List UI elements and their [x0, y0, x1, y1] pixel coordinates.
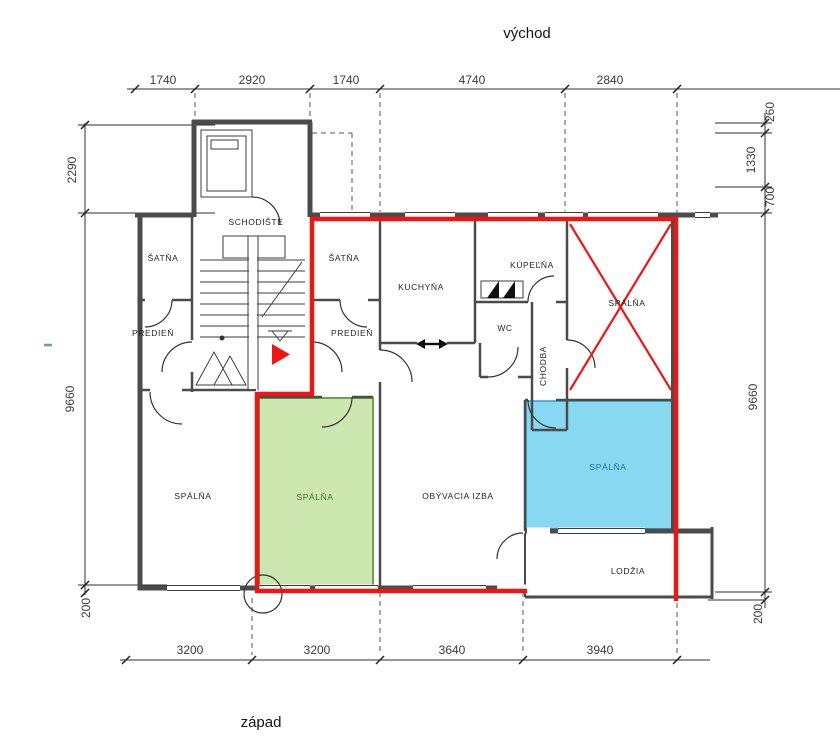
dim-right-9660: 9660: [746, 383, 760, 410]
dim-right-260: 260: [763, 102, 777, 122]
pass-through-arrow-icon: [416, 339, 448, 349]
room-label-chodba: CHODBA: [538, 346, 548, 386]
room-label-obyvacia-izba: OBÝVACIA IZBA: [422, 491, 493, 501]
room-label-spalna-green: SPÁLŇA: [296, 492, 333, 502]
staircase: [196, 130, 305, 390]
dimension-labels: 1740 2920 1740 4740 2840 3200 3200 3640 …: [63, 73, 777, 657]
dim-left-2290: 2290: [65, 156, 79, 183]
dim-bottom-4: 3940: [587, 643, 614, 657]
room-label-predien-left: PREDIEŇ: [132, 328, 174, 338]
dim-right-1330: 1330: [744, 146, 758, 173]
room-label-schodiste: SCHODIŠTE: [229, 217, 284, 227]
dim-bottom-2: 3200: [304, 643, 331, 657]
dim-right-700: 700: [763, 187, 777, 207]
dim-top-3: 1740: [333, 73, 360, 87]
room-label-wc: WC: [497, 323, 512, 333]
dim-top-5: 2840: [597, 73, 624, 87]
floor-plan-drawing: SCHODIŠTE ŠATŇA ŠATŇA PREDIEŇ PREDIEŇ KU…: [0, 0, 840, 747]
dim-left-200: 200: [79, 598, 93, 618]
dim-right-200: 200: [751, 604, 765, 624]
room-label-satna-right: ŠATŇA: [329, 253, 360, 263]
red-triangle-marker: [272, 344, 290, 365]
room-label-spalna-crossed: SPÁLŇA: [608, 298, 645, 308]
room-label-lodzia: LODŽIA: [611, 566, 645, 576]
floor-plan-page: SCHODIŠTE ŠATŇA ŠATŇA PREDIEŇ PREDIEŇ KU…: [0, 0, 840, 747]
room-label-satna-left: ŠATŇA: [148, 253, 179, 263]
room-label-kupelna: KÚPEĽŇA: [510, 260, 554, 270]
dim-left-9660: 9660: [63, 385, 77, 412]
room-label-spalna-blue: SPÁLŇA: [589, 462, 626, 472]
room-label-kuchyna: KUCHYŇA: [398, 282, 444, 292]
room-label-predien-right: PREDIEŇ: [331, 328, 373, 338]
compass-west-label: západ: [241, 714, 282, 731]
dim-top-2: 2920: [239, 73, 266, 87]
dim-bottom-1: 3200: [177, 643, 204, 657]
room-label-spalna-left: SPÁLŇA: [174, 491, 211, 501]
compass-east-label: východ: [503, 25, 551, 42]
dim-top-1: 1740: [150, 73, 177, 87]
dim-top-4: 4740: [459, 73, 486, 87]
dim-bottom-3: 3640: [439, 643, 466, 657]
